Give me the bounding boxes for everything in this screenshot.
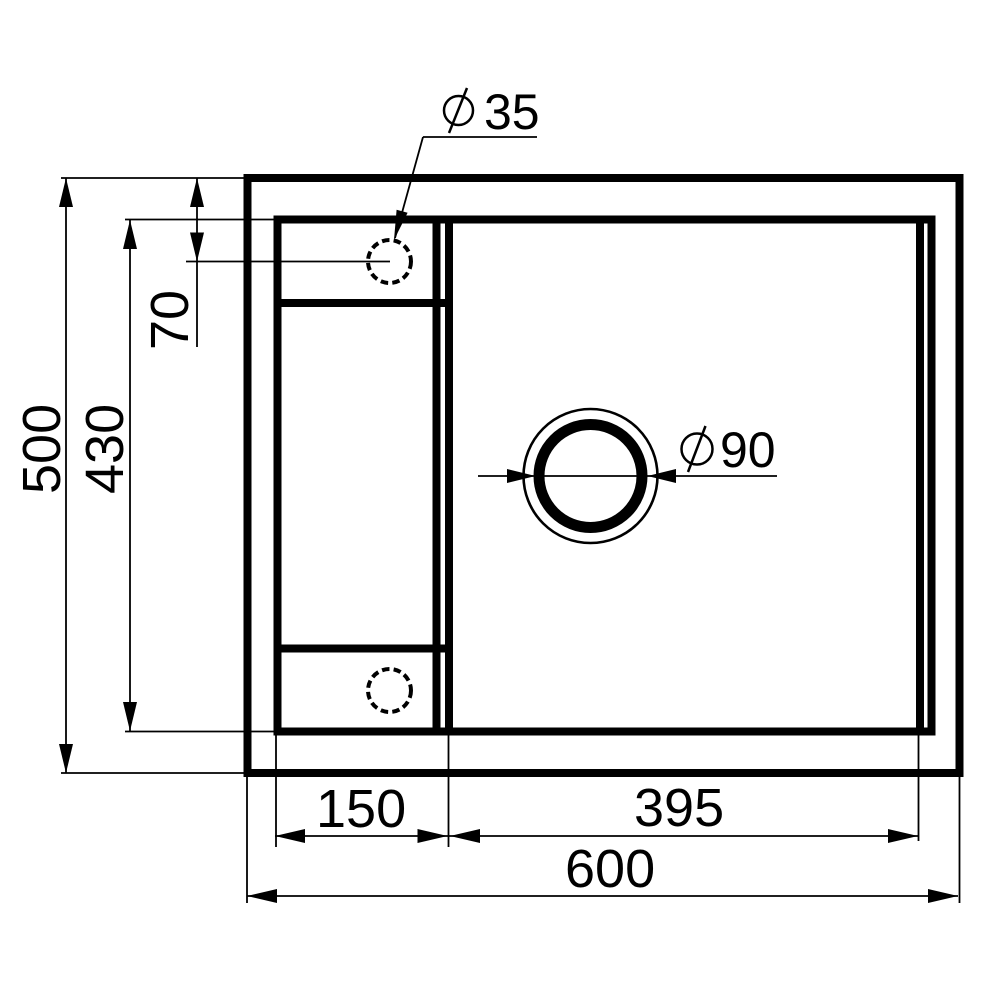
svg-text:150: 150: [316, 779, 406, 839]
svg-text:395: 395: [634, 778, 724, 838]
svg-text:430: 430: [75, 404, 135, 494]
svg-text:90: 90: [720, 422, 776, 478]
svg-text:70: 70: [140, 290, 200, 350]
svg-text:500: 500: [12, 404, 72, 494]
svg-text:35: 35: [484, 84, 540, 140]
svg-text:600: 600: [565, 839, 655, 899]
